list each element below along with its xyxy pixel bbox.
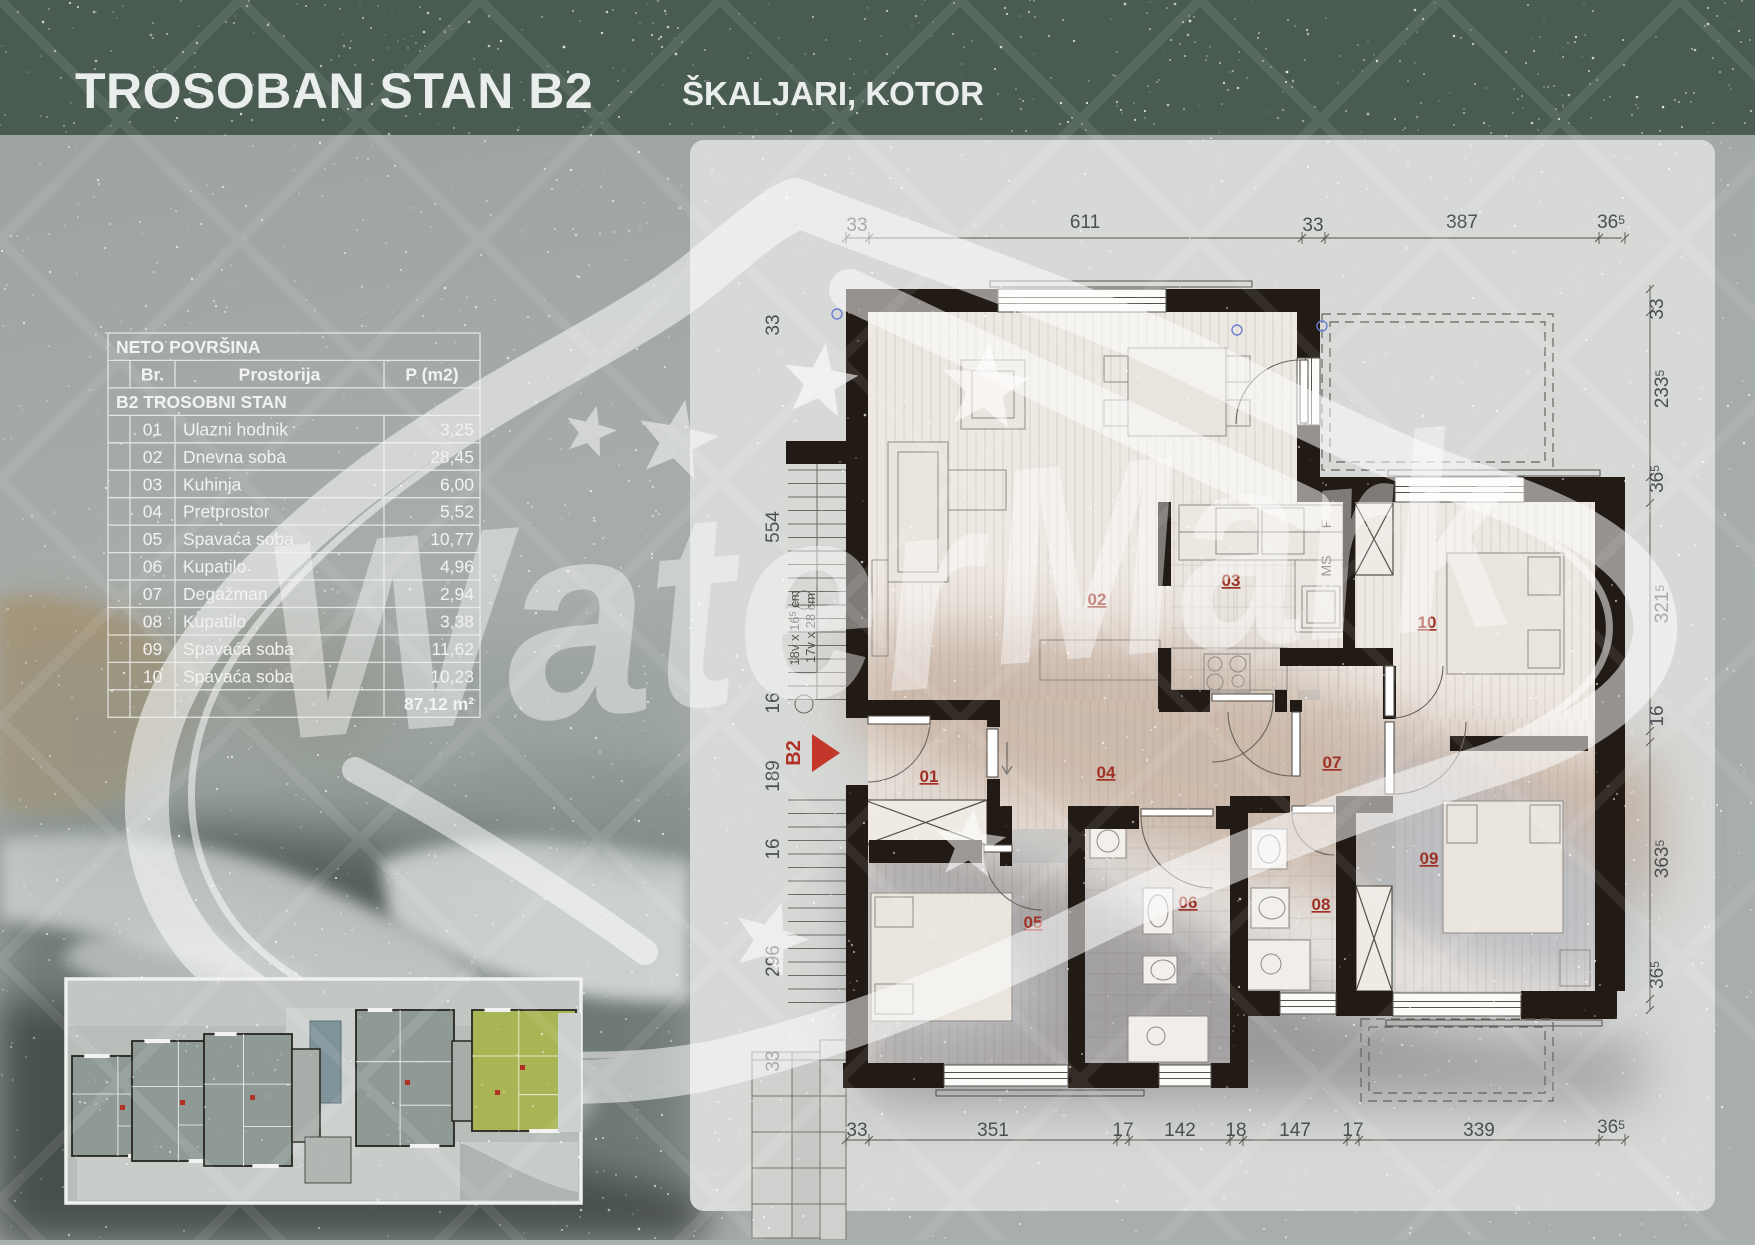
svg-text:04: 04 (143, 502, 163, 522)
svg-text:P (m2): P (m2) (405, 364, 458, 384)
svg-text:339: 339 (1463, 1120, 1495, 1141)
svg-text:Prostorija: Prostorija (239, 364, 321, 384)
svg-text:02: 02 (143, 447, 162, 467)
svg-text:Kupatilo: Kupatilo (183, 612, 246, 632)
svg-text:09: 09 (1420, 849, 1439, 868)
svg-text:142: 142 (1164, 1120, 1196, 1141)
svg-text:03: 03 (143, 474, 162, 494)
svg-text:611: 611 (1070, 212, 1100, 233)
svg-text:4,96: 4,96 (440, 557, 474, 577)
svg-text:10,77: 10,77 (430, 529, 474, 549)
svg-text:01: 01 (143, 419, 162, 439)
svg-text:351: 351 (977, 1120, 1009, 1141)
svg-text:33: 33 (1647, 298, 1668, 319)
svg-text:Water: Water (251, 431, 1006, 800)
svg-text:33: 33 (1302, 215, 1323, 236)
svg-text:16: 16 (763, 838, 784, 859)
svg-text:Degažman: Degažman (183, 584, 268, 604)
svg-text:18: 18 (1225, 1120, 1246, 1141)
svg-text:3,38: 3,38 (440, 612, 474, 632)
svg-text:33: 33 (846, 1120, 867, 1141)
svg-text:B2 TROSOBNI STAN: B2 TROSOBNI STAN (116, 392, 287, 412)
svg-text:10: 10 (143, 666, 163, 686)
svg-text:33: 33 (763, 314, 784, 335)
svg-text:04: 04 (1097, 763, 1116, 782)
svg-text:07: 07 (1323, 753, 1342, 772)
svg-text:3,25: 3,25 (440, 419, 474, 439)
svg-text:2,94: 2,94 (440, 584, 474, 604)
svg-text:01: 01 (920, 767, 939, 786)
svg-text:07: 07 (143, 584, 162, 604)
svg-text:11,62: 11,62 (432, 639, 475, 659)
svg-text:Spavaća soba: Spavaća soba (183, 639, 294, 659)
svg-text:Kupatilo: Kupatilo (183, 557, 246, 577)
svg-text:05: 05 (143, 529, 162, 549)
svg-text:Spavaća soba: Spavaća soba (183, 529, 294, 549)
svg-text:08: 08 (1312, 895, 1331, 914)
